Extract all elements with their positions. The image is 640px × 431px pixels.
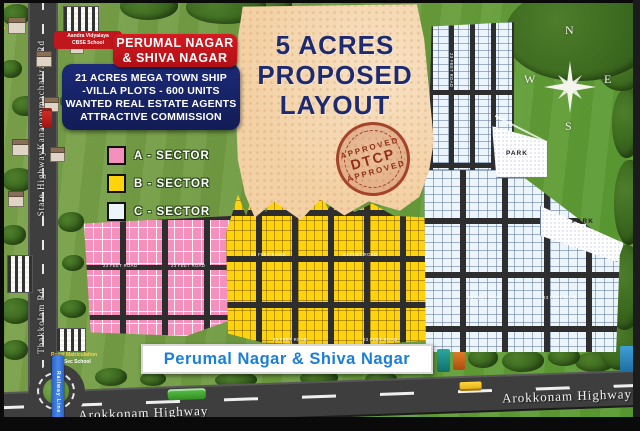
plot-road-label: 23 FEET ROAD [343, 252, 377, 257]
info-line2: -VILLA PLOTS - 600 UNITS [62, 85, 240, 97]
proposed-title-line3: LAYOUT [255, 90, 415, 120]
legend-label-a: A - SECTOR [134, 150, 210, 162]
legend-item-c: C - SECTOR [107, 202, 210, 221]
house-icon [8, 194, 24, 207]
sector-a-plots [84, 215, 249, 336]
compass-e: E [604, 72, 611, 87]
plot-road-label: 23 FEET ROAD [448, 53, 453, 87]
legend-item-a: A - SECTOR [107, 146, 210, 165]
proposed-title-line1: 5 ACRES [255, 30, 415, 60]
school-top-label: Aandra Vidyalaya CBSE School [54, 31, 122, 49]
bottom-project-banner: Perumal Nagar & Shiva Nagar [141, 344, 433, 374]
tree-icon [2, 340, 28, 360]
plot-road-label: 23 FEET ROAD [103, 263, 137, 268]
house-icon [8, 20, 26, 34]
compass-n: N [565, 23, 574, 38]
school-top-line1: Aandra Vidyalaya [55, 33, 121, 40]
info-box: 21 ACRES MEGA TOWN SHIP -VILLA PLOTS - 6… [62, 64, 240, 130]
plot-road-label: 23 FEET ROAD [468, 295, 502, 300]
signboard-icon [437, 349, 450, 372]
info-line4: ATTRACTIVE COMMISSION [62, 111, 240, 123]
tree-icon [60, 300, 86, 318]
tree-icon [58, 212, 84, 232]
frame-bottom [0, 417, 640, 431]
tree-icon [120, 0, 178, 20]
legend-swatch-c [107, 202, 126, 221]
house-icon [36, 54, 52, 67]
plot-road-label: 23 FEET ROAD [543, 295, 577, 300]
school-bottom-building-icon [56, 328, 86, 352]
school-bottom-label: Royal Matriculation Hr.Sec School [38, 352, 110, 366]
road-label-thakkolam: Thakkolam Rd [36, 288, 46, 354]
highway-label-right: Arokkonam Highway [502, 386, 632, 407]
plot-road-label: 23 FEET ROAD [363, 337, 397, 342]
legend-label-c: C - SECTOR [134, 206, 210, 218]
frame-top [0, 0, 640, 3]
park-2-label: PARK [572, 218, 594, 225]
yellow-car-icon [459, 381, 481, 391]
banner-line2: & SHIVA NAGAR [113, 51, 237, 66]
frame-left [0, 0, 4, 431]
signboard-icon-2 [620, 346, 634, 372]
stamp-inner-ring [337, 123, 409, 195]
compass-w: W [524, 72, 535, 87]
hut-icon [453, 352, 465, 370]
plot-road-label: 23 FEET ROAD [251, 252, 285, 257]
legend-swatch-b [107, 174, 126, 193]
proposed-title-line2: PROPOSED [255, 60, 415, 90]
house-icon [50, 150, 65, 162]
sector-c-plots-main [424, 170, 620, 352]
compass-s: S [565, 119, 572, 134]
temple-building-icon [7, 255, 33, 293]
red-car-icon [42, 108, 52, 128]
tree-icon [62, 255, 84, 271]
green-bus-icon [168, 388, 206, 400]
railway-line-label: Railway Line [55, 371, 61, 413]
info-line3: WANTED REAL ESTATE AGENTS [62, 98, 240, 110]
banner-line1: PERUMAL NAGAR [113, 36, 237, 51]
layout-map: 5 ACRES PROPOSED LAYOUT APPROVED DTCP AP… [0, 0, 640, 431]
tree-icon [95, 368, 127, 386]
tree-icon [140, 372, 166, 386]
proposed-title: 5 ACRES PROPOSED LAYOUT [255, 30, 415, 120]
road-label-state-highway: State Highway [36, 150, 46, 216]
school-bottom-line2: Hr.Sec School [38, 359, 110, 366]
project-name-banner: PERUMAL NAGAR & SHIVA NAGAR [113, 34, 237, 67]
compass-rose-icon: N S E W [520, 35, 620, 135]
plot-road-label: 23 FEET ROAD [171, 263, 205, 268]
school-bottom-line1: Royal Matriculation [38, 352, 110, 359]
info-line1: 21 ACRES MEGA TOWN SHIP [62, 72, 240, 84]
house-icon [12, 142, 29, 156]
legend-swatch-a [107, 146, 126, 165]
tree-icon [502, 350, 544, 372]
plot-road-label: 23 FEET ROAD [273, 337, 307, 342]
frame-right [633, 0, 640, 431]
school-building-icon [63, 6, 99, 33]
legend-item-b: B - SECTOR [107, 174, 210, 193]
bottom-banner-text: Perumal Nagar & Shiva Nagar [164, 350, 410, 369]
park-1-label: PARK [506, 150, 528, 157]
school-top-line2: CBSE School [55, 40, 121, 47]
legend-label-b: B - SECTOR [134, 178, 210, 190]
